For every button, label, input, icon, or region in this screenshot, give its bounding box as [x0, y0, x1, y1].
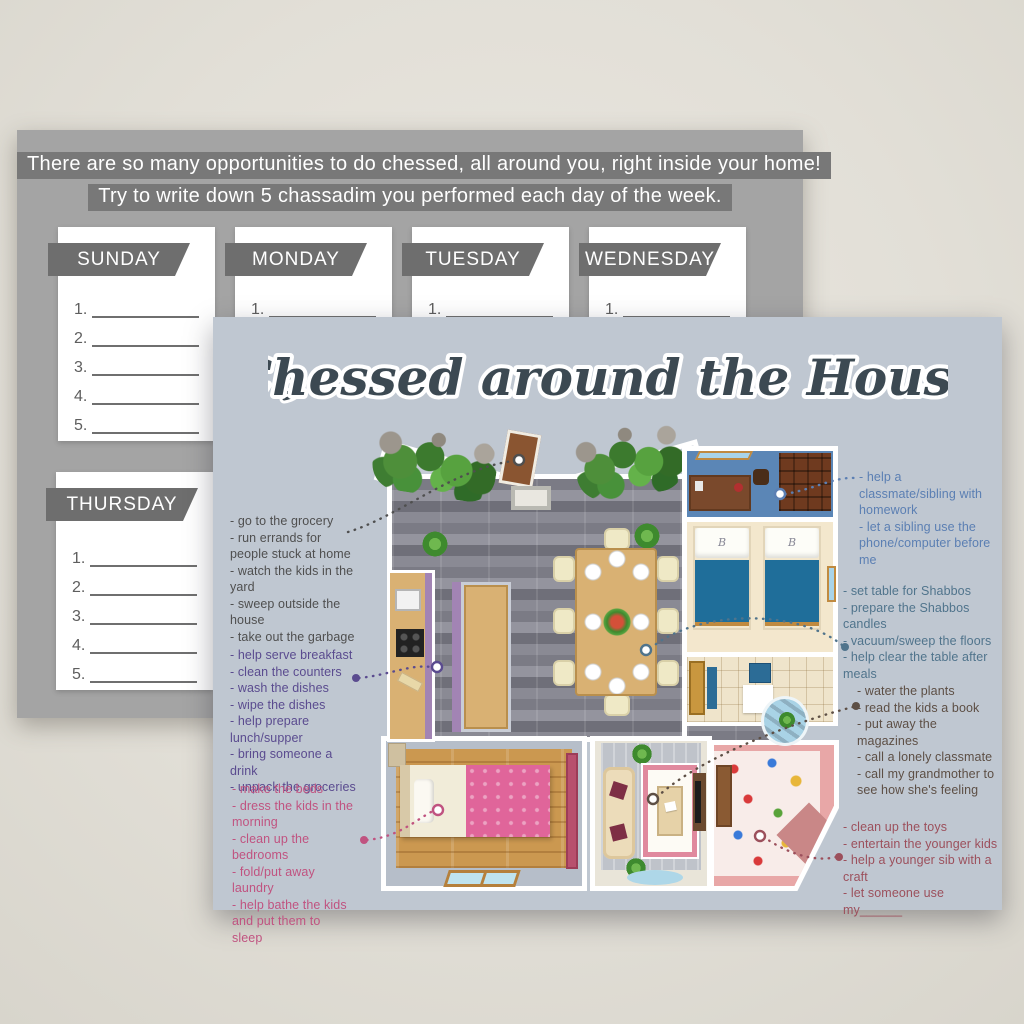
blank-writing-line	[90, 638, 197, 654]
pillow-right: B	[765, 528, 819, 558]
blank-writing-line	[90, 580, 197, 596]
annotation-item: - clean the counters	[230, 664, 362, 681]
annotation-item: - sweep outside the house	[230, 596, 356, 629]
day-panel-thursday: THURSDAY 1.2.3.4.5.	[56, 472, 213, 690]
annotation-item: - help a classmate/sibling with homework	[859, 469, 995, 519]
line-number: 2.	[74, 331, 87, 347]
blank-writing-line	[92, 302, 199, 318]
kitchen-island	[461, 582, 511, 732]
annotation-item: - help bathe the kids and put them to sl…	[232, 897, 354, 947]
fill-in-line-row: 1.	[428, 289, 553, 318]
day-banner-thursday: THURSDAY	[46, 488, 198, 521]
blank-writing-line	[269, 302, 376, 318]
page-title: Chessed around the House	[268, 348, 948, 407]
blank-writing-line	[90, 551, 197, 567]
oval-rug	[627, 870, 683, 885]
line-number: 2.	[72, 580, 85, 596]
master-bed	[400, 765, 550, 837]
worksheet-header: There are so many opportunities to do ch…	[17, 152, 803, 216]
line-number: 4.	[74, 389, 87, 405]
dining-set	[575, 548, 657, 696]
annotation-item: - help clear the table after meals	[843, 649, 999, 682]
pink-blanket	[466, 765, 550, 837]
dining-chair	[553, 556, 575, 582]
annotation-item: - bring someone a drink	[230, 746, 362, 779]
bed-right: B	[763, 526, 821, 630]
bed-left: B	[693, 526, 751, 630]
headboard	[400, 765, 410, 837]
annotation-item: - watch the kids in the yard	[230, 563, 356, 596]
line-number: 1.	[605, 302, 618, 318]
fill-in-line-row: 5.	[72, 654, 197, 683]
annotation-item: - make the beds	[232, 781, 354, 798]
line-number: 3.	[74, 360, 87, 376]
line-number: 5.	[72, 667, 85, 683]
annotation-item: - prepare the Shabbos candles	[843, 600, 999, 633]
bathroom-stool	[749, 663, 771, 683]
tv-screen	[695, 781, 701, 823]
area-rug	[643, 765, 697, 857]
line-number: 1.	[74, 302, 87, 318]
dining-chair	[657, 608, 679, 634]
kitchen-sink	[395, 589, 421, 611]
fill-in-lines: 1.2.3.4.5.	[74, 289, 199, 434]
magazine	[664, 801, 677, 812]
round-rug	[761, 696, 809, 746]
annotation-item: - clean up the bedrooms	[232, 831, 354, 864]
cutting-board	[397, 672, 423, 692]
annotation-item: - put away the magazines	[857, 716, 999, 749]
dining-chair	[553, 660, 575, 686]
blank-writing-line	[92, 418, 199, 434]
fill-in-line-row: 1.	[74, 289, 199, 318]
annotation-item: - fold/put away laundry	[232, 864, 354, 897]
stove	[396, 629, 424, 657]
annotation-bedroom-chores: - make the beds- dress the kids in the m…	[232, 781, 354, 946]
blank-writing-line	[92, 360, 199, 376]
desk-papers	[695, 481, 703, 491]
blank-writing-line	[623, 302, 730, 318]
cabinet-towel	[707, 667, 717, 709]
bedroom-wardrobe	[566, 753, 578, 869]
bookshelf	[779, 453, 831, 511]
desk-chair	[753, 469, 769, 485]
annotation-playroom-chores: - clean up the toys- entertain the young…	[843, 819, 1001, 918]
chessed-around-house-page: Chessed around the House	[213, 317, 1002, 910]
day-banner-monday: MONDAY	[225, 243, 367, 276]
annotation-item: - vacuum/sweep the floors	[843, 633, 999, 650]
fill-in-line-row: 2.	[72, 567, 197, 596]
study-desk	[689, 475, 751, 511]
annotation-dining-chores: - set table for Shabbos- prepare the Sha…	[843, 583, 999, 682]
annotation-item: - run errands for people stuck at home	[230, 530, 356, 563]
annotation-item: - water the plants	[857, 683, 999, 700]
sofa-cushion	[609, 781, 628, 800]
header-line-2: Try to write down 5 chassadim you perfor…	[88, 184, 732, 211]
annotation-item: - entertain the younger kids	[843, 836, 1001, 853]
annotation-item: - read the kids a book	[857, 700, 999, 717]
kitchen-counter	[387, 570, 435, 742]
fill-in-line-row: 3.	[74, 347, 199, 376]
door-mat	[511, 486, 551, 510]
fill-in-line-row: 2.	[74, 318, 199, 347]
blank-writing-line	[92, 389, 199, 405]
fill-in-line-row: 3.	[72, 596, 197, 625]
dining-chair	[604, 694, 630, 716]
annotation-living-chores: - water the plants- read the kids a book…	[857, 683, 999, 799]
desk-mug	[734, 483, 743, 492]
annotation-item: - clean up the toys	[843, 819, 1001, 836]
bedroom-window	[827, 566, 836, 602]
annotation-item: - help serve breakfast	[230, 647, 362, 664]
line-number: 1.	[72, 551, 85, 567]
day-banner-tuesday: TUESDAY	[402, 243, 544, 276]
bathroom-cabinet	[689, 661, 705, 715]
annotation-item: - help prepare lunch/supper	[230, 713, 362, 746]
annotation-kitchen-chores: - help serve breakfast- clean the counte…	[230, 647, 362, 796]
annotation-outdoor-chores: - go to the grocery- run errands for peo…	[230, 513, 356, 645]
hall-plant-left	[421, 530, 449, 558]
sofa-cushion	[609, 823, 627, 841]
blank-writing-line	[92, 331, 199, 347]
annotation-item: - call my grandmother to see how she's f…	[857, 766, 999, 799]
bathroom	[687, 657, 833, 722]
annotation-item: - go to the grocery	[230, 513, 356, 530]
right-wing: B B	[682, 446, 838, 726]
rug-plant	[778, 711, 796, 729]
house-floor-plan: B B	[371, 430, 849, 898]
dining-chair	[604, 528, 630, 550]
window-divider	[480, 873, 487, 884]
dining-chair	[657, 660, 679, 686]
header-line-1: There are so many opportunities to do ch…	[17, 152, 831, 179]
line-number: 1.	[251, 302, 264, 318]
day-banner-wednesday: WEDNESDAY	[579, 243, 721, 276]
day-banner-sunday: SUNDAY	[48, 243, 190, 276]
page-title-art: Chessed around the House	[268, 327, 948, 427]
annotation-item: - dress the kids in the morning	[232, 798, 354, 831]
line-number: 4.	[72, 638, 85, 654]
pillow-left: B	[695, 528, 749, 558]
fill-in-line-row: 1.	[251, 289, 376, 318]
dining-chair	[553, 608, 575, 634]
line-number: 5.	[74, 418, 87, 434]
fill-in-line-row: 1.	[605, 289, 730, 318]
living-room	[590, 736, 712, 891]
study-room	[687, 451, 833, 517]
toy-shelf	[716, 765, 732, 827]
master-bedroom	[381, 736, 587, 891]
fill-in-line-row: 4.	[74, 376, 199, 405]
annotation-item: - help a younger sib with a craft	[843, 852, 1001, 885]
bedroom-windows	[443, 870, 521, 887]
fill-in-lines: 1.2.3.4.5.	[72, 538, 197, 683]
blanket-right	[765, 560, 819, 626]
annotation-item: - let someone use my______	[843, 885, 1001, 918]
leader-start-bedroom	[360, 836, 368, 844]
annotation-study-chores: - help a classmate/sibling with homework…	[859, 469, 995, 568]
bed-pillow	[414, 779, 434, 823]
fill-in-line-row: 1.	[72, 538, 197, 567]
blanket-left	[695, 560, 749, 626]
day-panel-sunday: SUNDAY 1.2.3.4.5.	[58, 227, 215, 441]
dining-chair	[657, 556, 679, 582]
line-number: 3.	[72, 609, 85, 625]
blank-writing-line	[90, 667, 197, 683]
hall-plant-right	[633, 522, 661, 550]
tv-console	[693, 773, 706, 831]
blank-writing-line	[90, 609, 197, 625]
nightstand	[388, 743, 406, 767]
coffee-table	[657, 786, 683, 836]
annotation-item: - take out the garbage	[230, 629, 356, 646]
annotation-item: - wash the dishes	[230, 680, 362, 697]
playroom	[709, 740, 839, 891]
annotation-item: - set table for Shabbos	[843, 583, 999, 600]
annotation-item: - let a sibling use the phone/computer b…	[859, 519, 995, 569]
fill-in-line-row: 4.	[72, 625, 197, 654]
blank-writing-line	[446, 302, 553, 318]
page-background: { "colors": { "page_bg": "#e5e2da", "bac…	[0, 0, 1024, 1024]
study-window	[695, 451, 753, 460]
fill-in-line-row: 5.	[74, 405, 199, 434]
line-number: 1.	[428, 302, 441, 318]
dining-table	[575, 548, 657, 696]
annotation-item: - wipe the dishes	[230, 697, 362, 714]
annotation-item: - call a lonely classmate	[857, 749, 999, 766]
living-plant-top	[631, 743, 653, 765]
playroom-walls	[714, 745, 834, 886]
sofa	[603, 767, 635, 859]
kids-bedroom: B B	[687, 522, 833, 652]
